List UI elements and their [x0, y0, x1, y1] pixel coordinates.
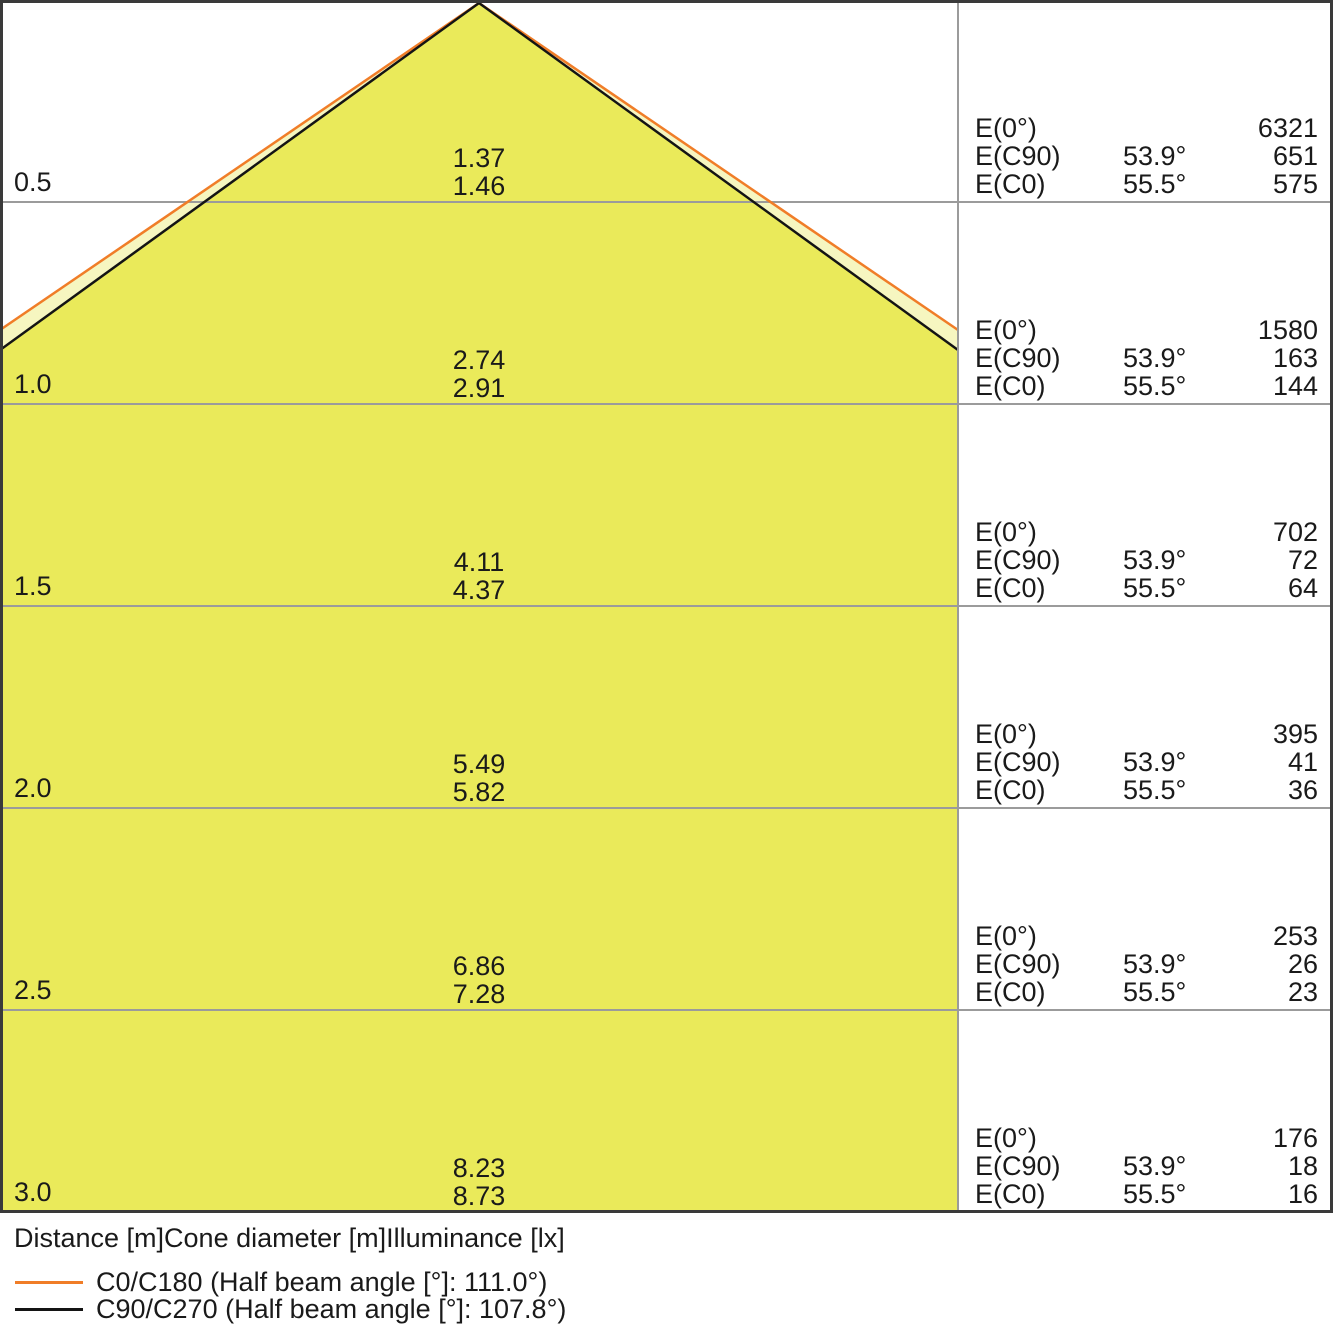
cone-diameter-values: 6.86 7.28	[399, 952, 559, 1008]
ec90-angle: 53.9°	[1123, 1152, 1238, 1180]
legend-label-c90: C90/C270 (Half beam angle [°]: 107.8°)	[96, 1295, 566, 1323]
table-row: E(C0)55.5°575	[975, 170, 1318, 198]
cone-diameter-values: 5.49 5.82	[399, 750, 559, 806]
ec0-angle: 55.5°	[1123, 978, 1238, 1006]
ec90-value: 26	[1238, 950, 1318, 978]
e0-angle	[1123, 1124, 1238, 1152]
table-row: E(0°)176	[975, 1124, 1318, 1152]
cone-diameter-c0: 4.37	[399, 576, 559, 604]
distance-label: 1.0	[14, 370, 52, 398]
cone-diameter-c0: 5.82	[399, 778, 559, 806]
illuminance-block: E(0°)395 E(C90)53.9°41 E(C0)55.5°36	[975, 720, 1318, 804]
e0-angle	[1123, 720, 1238, 748]
cone-diameter-c0: 1.46	[399, 172, 559, 200]
e0-label: E(0°)	[975, 518, 1123, 546]
table-row: E(0°)702	[975, 518, 1318, 546]
table-row: E(0°)395	[975, 720, 1318, 748]
table-row: E(0°)1580	[975, 316, 1318, 344]
ec90-label: E(C90)	[975, 546, 1123, 574]
ec90-value: 72	[1238, 546, 1318, 574]
illuminance-block: E(0°)6321 E(C90)53.9°651 E(C0)55.5°575	[975, 114, 1318, 198]
distance-label: 1.5	[14, 572, 52, 600]
table-row: E(C90)53.9°163	[975, 344, 1318, 372]
e0-value: 702	[1238, 518, 1318, 546]
ec0-label: E(C0)	[975, 978, 1123, 1006]
ec0-angle: 55.5°	[1123, 776, 1238, 804]
c90-line-swatch	[15, 1308, 83, 1311]
cone-diameter-values: 1.37 1.46	[399, 144, 559, 200]
e0-angle	[1123, 114, 1238, 142]
table-row: E(C0)55.5°144	[975, 372, 1318, 400]
e0-label: E(0°)	[975, 316, 1123, 344]
distance-label: 2.0	[14, 774, 52, 802]
distance-label: 0.5	[14, 168, 52, 196]
ec0-label: E(C0)	[975, 776, 1123, 804]
e0-label: E(0°)	[975, 114, 1123, 142]
e0-value: 176	[1238, 1124, 1318, 1152]
table-row: E(C90)53.9°18	[975, 1152, 1318, 1180]
ec90-angle: 53.9°	[1123, 546, 1238, 574]
c0-line-swatch	[15, 1281, 83, 1284]
ec0-angle: 55.5°	[1123, 574, 1238, 602]
ec0-label: E(C0)	[975, 170, 1123, 198]
cone-diameter-values: 4.11 4.37	[399, 548, 559, 604]
cone-diameter-c90: 1.37	[399, 144, 559, 172]
cone-diameter-values: 2.74 2.91	[399, 346, 559, 402]
table-row: E(C90)53.9°26	[975, 950, 1318, 978]
ec0-value: 64	[1238, 574, 1318, 602]
illuminance-block: E(0°)702 E(C90)53.9°72 E(C0)55.5°64	[975, 518, 1318, 602]
ec0-label: E(C0)	[975, 1180, 1123, 1208]
e0-angle	[1123, 518, 1238, 546]
ec90-angle: 53.9°	[1123, 142, 1238, 170]
ec90-label: E(C90)	[975, 142, 1123, 170]
light-cone-diagram-page: 0.5 1.0 1.5 2.0 2.5 3.0 1.37 1.46 2.74 2…	[0, 0, 1334, 1334]
ec0-value: 23	[1238, 978, 1318, 1006]
ec0-angle: 55.5°	[1123, 170, 1238, 198]
e0-value: 6321	[1238, 114, 1318, 142]
ec0-angle: 55.5°	[1123, 372, 1238, 400]
ec90-label: E(C90)	[975, 950, 1123, 978]
ec90-value: 41	[1238, 748, 1318, 776]
cone-diameter-values: 8.23 8.73	[399, 1154, 559, 1210]
legend-label-c0: C0/C180 (Half beam angle [°]: 111.0°)	[96, 1268, 547, 1296]
table-row: E(C90)53.9°41	[975, 748, 1318, 776]
ec90-angle: 53.9°	[1123, 950, 1238, 978]
ec90-angle: 53.9°	[1123, 344, 1238, 372]
ec0-label: E(C0)	[975, 372, 1123, 400]
e0-angle	[1123, 922, 1238, 950]
table-row: E(C90)53.9°72	[975, 546, 1318, 574]
table-row: E(C0)55.5°23	[975, 978, 1318, 1006]
ec0-value: 575	[1238, 170, 1318, 198]
table-row: E(0°)6321	[975, 114, 1318, 142]
ec90-value: 18	[1238, 1152, 1318, 1180]
ec0-label: E(C0)	[975, 574, 1123, 602]
distance-label: 3.0	[14, 1178, 52, 1206]
cone-diameter-c0: 7.28	[399, 980, 559, 1008]
ec90-value: 163	[1238, 344, 1318, 372]
ec90-label: E(C90)	[975, 748, 1123, 776]
illuminance-block: E(0°)1580 E(C90)53.9°163 E(C0)55.5°144	[975, 316, 1318, 400]
cone-diameter-c0: 2.91	[399, 374, 559, 402]
ec90-value: 651	[1238, 142, 1318, 170]
cone-diameter-c90: 6.86	[399, 952, 559, 980]
e0-label: E(0°)	[975, 1124, 1123, 1152]
e0-label: E(0°)	[975, 720, 1123, 748]
e0-value: 253	[1238, 922, 1318, 950]
ec90-label: E(C90)	[975, 344, 1123, 372]
ec0-value: 144	[1238, 372, 1318, 400]
axis-caption: Distance [m]Cone diameter [m]Illuminance…	[14, 1224, 565, 1252]
e0-label: E(0°)	[975, 922, 1123, 950]
cone-diameter-c90: 5.49	[399, 750, 559, 778]
cone-diameter-c90: 4.11	[399, 548, 559, 576]
cone-diameter-c90: 8.23	[399, 1154, 559, 1182]
illuminance-block: E(0°)253 E(C90)53.9°26 E(C0)55.5°23	[975, 922, 1318, 1006]
e0-value: 1580	[1238, 316, 1318, 344]
e0-value: 395	[1238, 720, 1318, 748]
table-row: E(C0)55.5°36	[975, 776, 1318, 804]
table-row: E(C0)55.5°16	[975, 1180, 1318, 1208]
cone-diameter-c0: 8.73	[399, 1182, 559, 1210]
e0-angle	[1123, 316, 1238, 344]
table-row: E(0°)253	[975, 922, 1318, 950]
ec0-value: 36	[1238, 776, 1318, 804]
ec0-value: 16	[1238, 1180, 1318, 1208]
table-row: E(C90)53.9°651	[975, 142, 1318, 170]
distance-label: 2.5	[14, 976, 52, 1004]
table-row: E(C0)55.5°64	[975, 574, 1318, 602]
illuminance-block: E(0°)176 E(C90)53.9°18 E(C0)55.5°16	[975, 1124, 1318, 1208]
ec90-angle: 53.9°	[1123, 748, 1238, 776]
ec90-label: E(C90)	[975, 1152, 1123, 1180]
cone-diameter-c90: 2.74	[399, 346, 559, 374]
ec0-angle: 55.5°	[1123, 1180, 1238, 1208]
